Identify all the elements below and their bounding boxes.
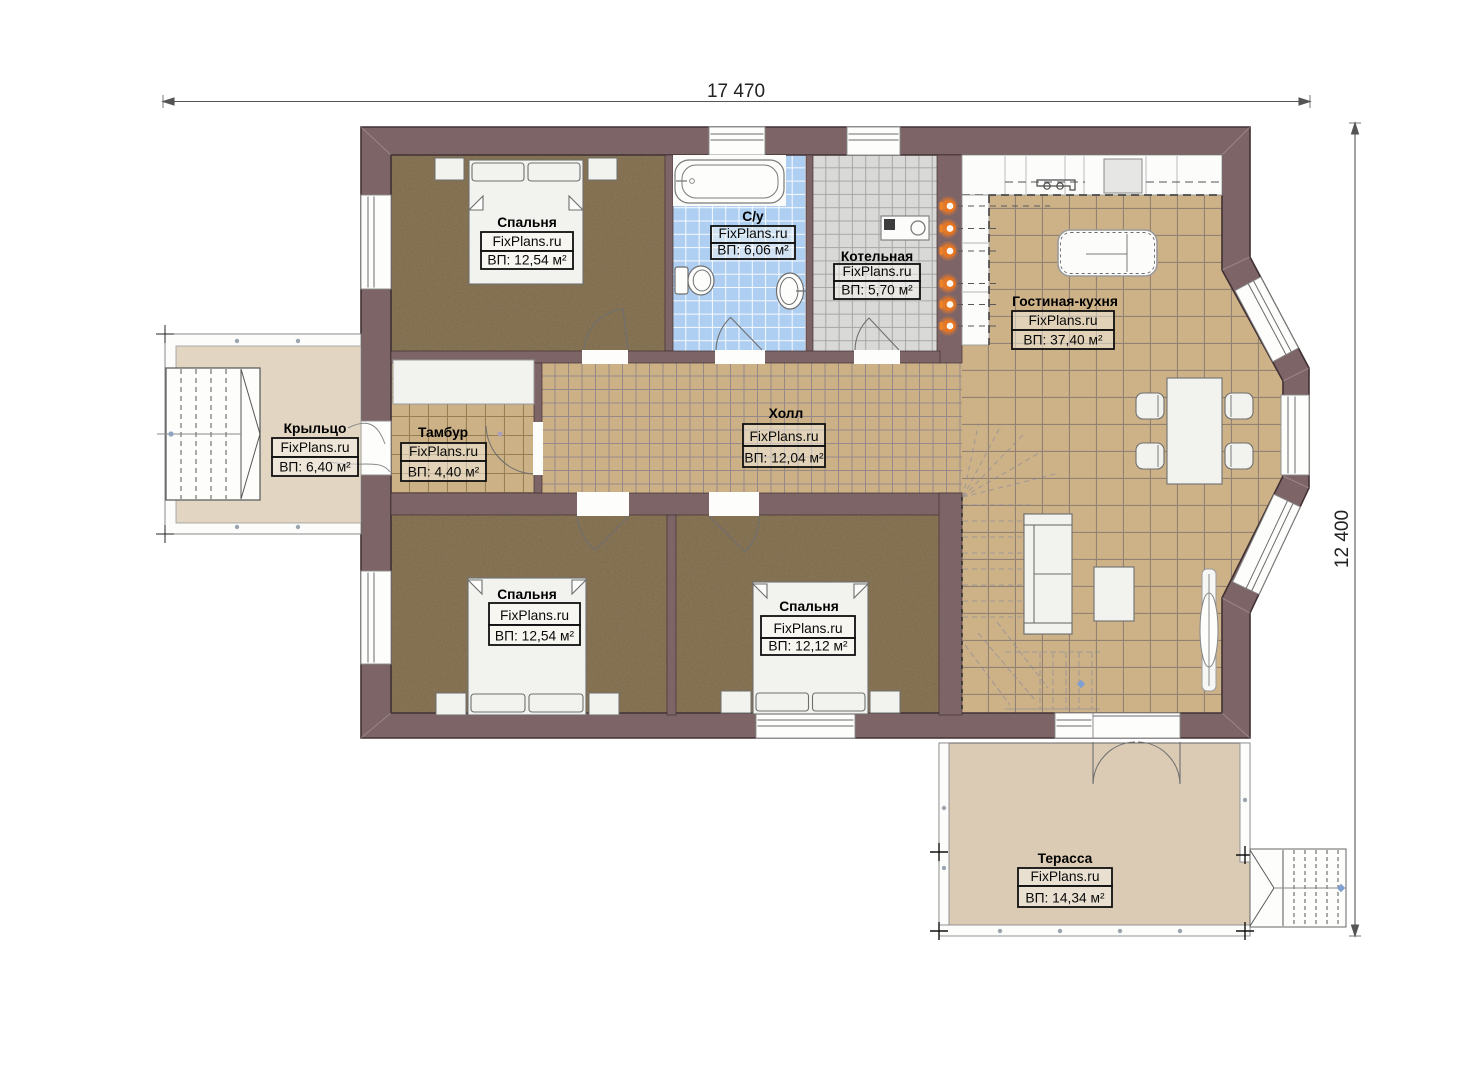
svg-text:ВП: 12,54 м²: ВП: 12,54 м² [495,629,575,644]
svg-text:ВП: 12,54 м²: ВП: 12,54 м² [487,253,567,268]
svg-text:FixPlans.ru: FixPlans.ru [500,608,569,623]
svg-text:ВП: 37,40 м²: ВП: 37,40 м² [1023,333,1103,348]
svg-text:FixPlans.ru: FixPlans.ru [492,234,561,249]
svg-text:FixPlans.ru: FixPlans.ru [773,621,842,636]
svg-text:FixPlans.ru: FixPlans.ru [842,264,911,279]
svg-text:ВП: 12,12 м²: ВП: 12,12 м² [768,639,848,654]
svg-text:ВП: 5,70 м²: ВП: 5,70 м² [841,283,913,298]
svg-text:Терасса: Терасса [1038,851,1093,866]
svg-text:Котельная: Котельная [841,249,913,264]
svg-text:FixPlans.ru: FixPlans.ru [718,226,787,241]
svg-text:12 400: 12 400 [1332,510,1353,568]
svg-text:FixPlans.ru: FixPlans.ru [280,440,349,455]
svg-text:FixPlans.ru: FixPlans.ru [1028,313,1097,328]
svg-text:ВП: 12,04 м²: ВП: 12,04 м² [744,451,824,466]
svg-text:Спальня: Спальня [497,587,557,602]
svg-text:Гостиная-кухня: Гостиная-кухня [1012,294,1118,309]
svg-text:FixPlans.ru: FixPlans.ru [749,429,818,444]
svg-text:ВП: 4,40 м²: ВП: 4,40 м² [408,465,480,480]
svg-text:С/у: С/у [742,209,764,224]
svg-text:ВП: 6,06 м²: ВП: 6,06 м² [717,243,789,258]
svg-text:Спальня: Спальня [779,599,839,614]
svg-text:ВП: 6,40 м²: ВП: 6,40 м² [279,460,351,475]
svg-text:Крыльцо: Крыльцо [284,421,347,436]
svg-text:17 470: 17 470 [707,81,765,102]
svg-text:FixPlans.ru: FixPlans.ru [1030,869,1099,884]
svg-text:Холл: Холл [769,406,804,421]
svg-text:ВП: 14,34 м²: ВП: 14,34 м² [1025,891,1105,906]
svg-text:FixPlans.ru: FixPlans.ru [409,444,478,459]
svg-text:Тамбур: Тамбур [418,425,468,440]
svg-text:Спальня: Спальня [497,215,557,230]
